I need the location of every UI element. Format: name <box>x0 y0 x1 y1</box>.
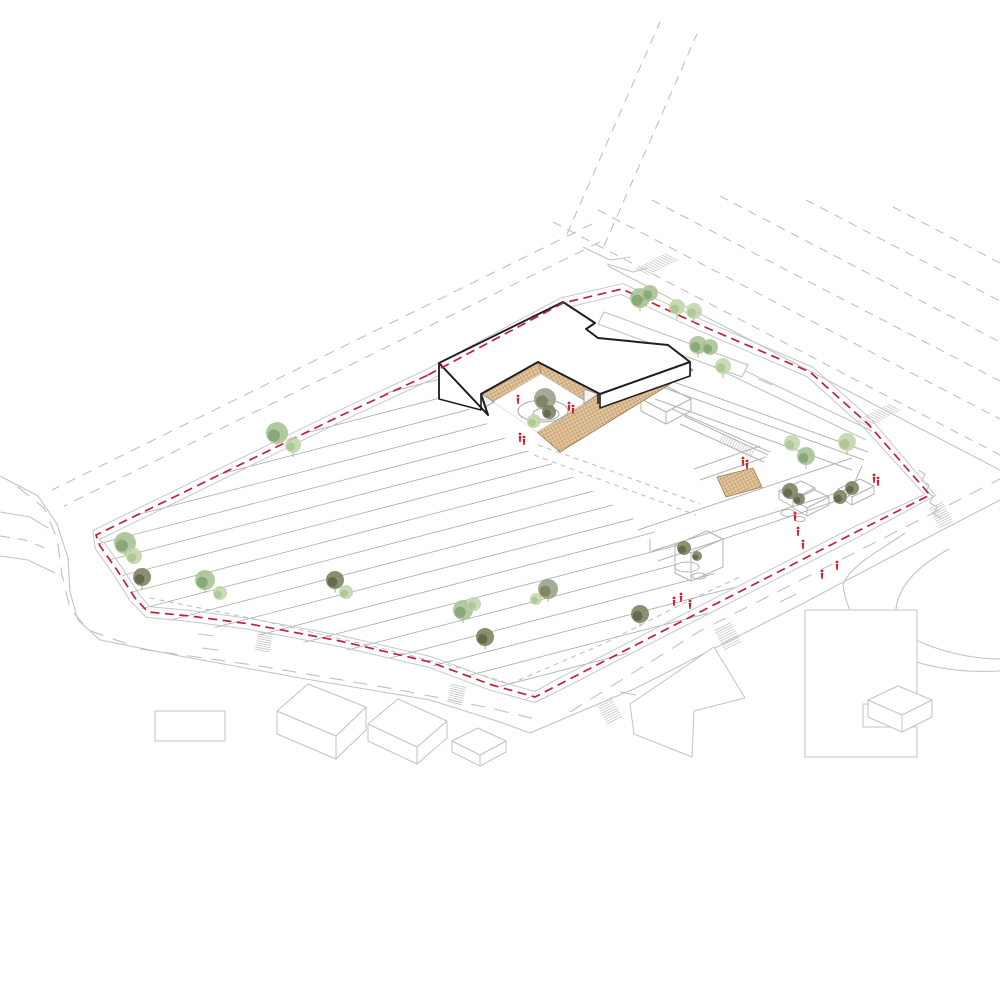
tree-icon <box>126 548 142 564</box>
tree-icon <box>527 414 541 428</box>
pedestrian-icon <box>821 570 824 579</box>
pedestrian-icon <box>680 593 683 602</box>
tree-icon <box>833 490 847 504</box>
field-hatch-layer <box>40 111 960 939</box>
pedestrian-icon <box>673 597 676 606</box>
pedestrian-icon <box>794 512 797 521</box>
pedestrian-icon <box>523 436 526 445</box>
pedestrian-icon <box>746 460 749 469</box>
tree-icon <box>631 605 649 627</box>
tree-icon <box>266 422 288 446</box>
tree-icon <box>797 447 815 469</box>
pedestrian-icon <box>797 527 800 536</box>
tree-icon <box>542 405 556 419</box>
pedestrian-icon <box>802 540 805 549</box>
tree-icon <box>793 493 805 505</box>
tree-icon <box>784 435 800 451</box>
tree-icon <box>133 568 151 590</box>
tree-icon <box>845 481 859 495</box>
tree-icon <box>213 586 227 600</box>
tree-icon <box>195 570 215 593</box>
pedestrian-icon <box>877 477 880 486</box>
pedestrian-icon <box>689 600 692 609</box>
tree-icon <box>339 585 353 599</box>
tree-icon <box>692 551 702 561</box>
tree-icon <box>702 339 718 355</box>
tree-icon <box>530 593 542 605</box>
tree-icon <box>642 285 658 301</box>
tree-icon <box>715 358 731 378</box>
tree-icon <box>467 597 481 611</box>
pedestrian-icon <box>873 474 876 483</box>
site-plan-canvas <box>0 0 1000 1000</box>
tree-icon <box>686 303 702 323</box>
pedestrian-icon <box>519 433 522 442</box>
tree-icon <box>677 541 691 555</box>
site-plan-page <box>0 0 1000 1000</box>
tree-icon <box>476 628 494 650</box>
pedestrian-icon <box>836 561 839 570</box>
